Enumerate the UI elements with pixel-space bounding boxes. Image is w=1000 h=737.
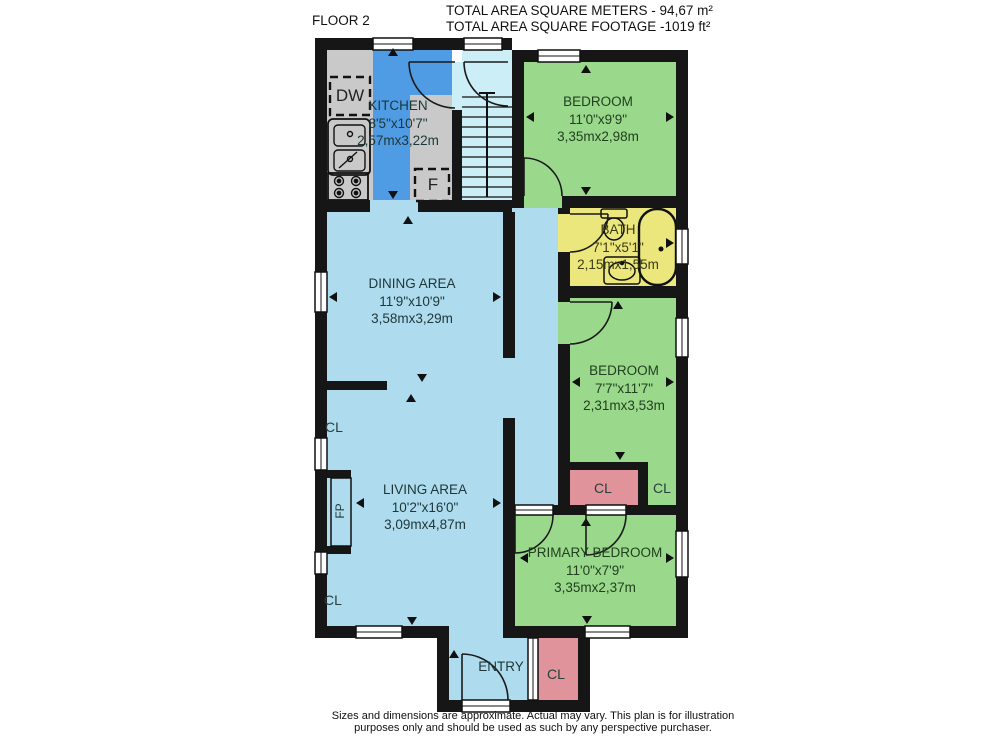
closet-label-bedroom-middle: CL — [653, 480, 671, 496]
closet-label-living-lower: CL — [324, 592, 342, 608]
kitchen-dining-opening — [370, 200, 418, 212]
hallway-floor — [512, 208, 558, 515]
floorplan-drawing — [0, 0, 1000, 737]
disclaimer: Sizes and dimensions are approximate. Ac… — [332, 711, 735, 734]
closet-label-hall: CL — [594, 480, 612, 496]
room-label-bedroom-top: BEDROOM 11'0"x9'9" 3,35mx2,98m — [557, 93, 639, 146]
dishwasher-label: DW — [336, 86, 364, 106]
room-label-kitchen: KITCHEN 8'5"x10'7" 2,57mx3,22m — [357, 97, 439, 150]
fridge-label: F — [428, 175, 438, 195]
closet-label-entry: CL — [547, 666, 565, 682]
total-area-footage: TOTAL AREA SQUARE FOOTAGE -1019 ft² — [446, 19, 713, 35]
fireplace-label: FP — [333, 503, 347, 518]
room-label-bath: BATH 7'1"x5'1" 2,15mx1,55m — [577, 221, 659, 274]
floor-label: FLOOR 2 — [312, 13, 370, 28]
bedroom-top-door-opening — [524, 196, 562, 208]
room-label-living: LIVING AREA 10'2"x16'0" 3,09mx4,87m — [383, 481, 467, 534]
floor-plan: FLOOR 2 TOTAL AREA SQUARE METERS - 94,67… — [0, 0, 1000, 737]
room-label-primary-bedroom: PRIMARY BEDROOM 11'0"x7'9" 3,35mx2,37m — [528, 544, 663, 597]
room-label-bedroom-middle: BEDROOM 7'7"x11'7" 2,31mx3,53m — [583, 362, 665, 415]
dining-hall-opening — [503, 358, 515, 418]
bath-door-opening — [558, 214, 570, 252]
kitchen-landing-opening — [452, 62, 462, 110]
room-label-dining: DINING AREA 11'9"x10'9" 3,58mx3,29m — [368, 275, 455, 328]
total-area-meters: TOTAL AREA SQUARE METERS - 94,67 m² — [446, 3, 713, 19]
bedroom-middle-door-opening — [558, 302, 570, 344]
room-label-entry: ENTRY — [478, 658, 524, 676]
total-area: TOTAL AREA SQUARE METERS - 94,67 m² TOTA… — [446, 3, 713, 34]
closet-label-living-upper: CL — [325, 419, 343, 435]
